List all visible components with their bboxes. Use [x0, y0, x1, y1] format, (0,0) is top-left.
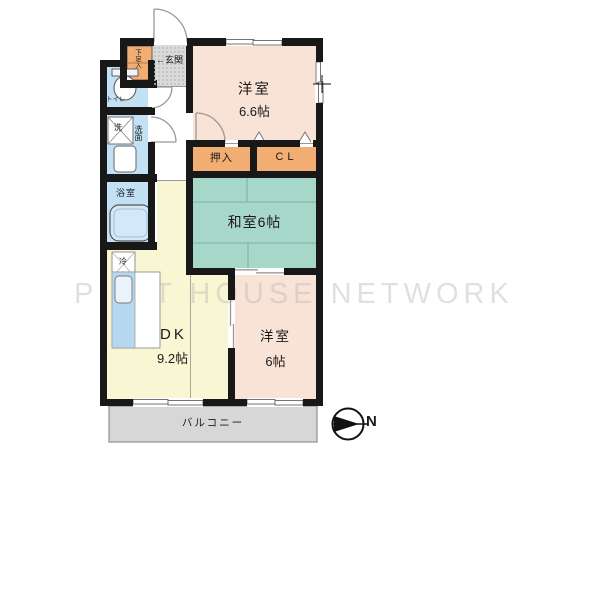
western-room-2-label: 洋室 [235, 330, 316, 344]
north-compass [333, 409, 369, 440]
dk-size: 9.2帖 [157, 352, 188, 365]
closet-cl-label: CL [257, 152, 316, 163]
washroom-door-arc [151, 117, 176, 142]
japanese-room-label: 和室6帖 [193, 215, 316, 229]
dk-label: DK [160, 327, 187, 342]
north-label: N [366, 414, 377, 429]
toilet-door-arc [151, 87, 172, 108]
western-room-1-label: 洋室 [193, 83, 316, 98]
washer-label: 洗 [114, 124, 122, 132]
window-top-sash [253, 41, 282, 46]
window-right-sash [316, 62, 321, 83]
toilet-label: トイレ [106, 97, 126, 104]
bathtub-icon [110, 205, 151, 241]
window-bottom-sash [275, 401, 303, 406]
kitchen-counter [112, 272, 160, 348]
oshiire-label: 押入 [193, 153, 250, 164]
window-bottom-sash [133, 400, 168, 405]
window-top-sash [226, 40, 254, 45]
balcony-label: バルコニー [109, 418, 317, 429]
window-bottom-sash [247, 400, 275, 405]
kitchen-sink-icon [115, 276, 132, 303]
entrance-floor-texture [153, 46, 186, 85]
entrance-label-text: 玄関 [165, 55, 183, 65]
window-bottom-sash [168, 401, 203, 406]
washbasin-icon [114, 146, 136, 172]
entrance-label: ←玄関 [156, 56, 183, 65]
shoe-cabinet-label: 下足入 [133, 49, 140, 79]
floorplan: PITAT HOUSE NETWORK [0, 0, 600, 600]
western-room-1-size: 6.6帖 [193, 105, 316, 118]
washroom-label: 洗面 [134, 125, 142, 161]
left-arrow-icon: ← [156, 55, 165, 65]
bathroom-label: 浴室 [116, 189, 136, 198]
entrance-door-arc [154, 9, 187, 42]
western-room-2-size: 6帖 [235, 355, 316, 368]
fridge-label: 冷 [119, 258, 127, 266]
